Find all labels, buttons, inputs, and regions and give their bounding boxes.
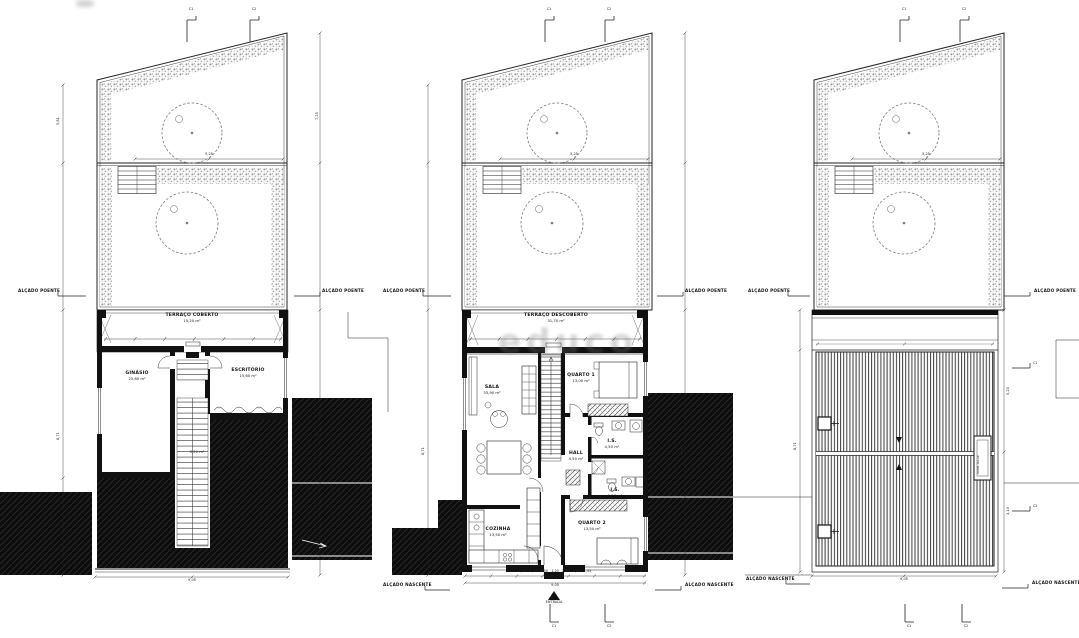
section-label: C2: [1033, 505, 1037, 508]
dimension: 9,05: [188, 579, 196, 583]
garden-panel-3: [814, 33, 1004, 310]
garden-panel-1: [97, 33, 287, 310]
dimension: 3,10: [1007, 507, 1011, 515]
dimension: 9,05: [551, 584, 559, 588]
dimension: 5,25: [922, 153, 930, 157]
elevation-label-nascente: ALÇADO NASCENTE: [685, 583, 734, 587]
elevation-label-nascente: ALÇADO NASCENTE: [1032, 581, 1079, 585]
section-label: C1: [907, 625, 911, 628]
entrance-label: ENTRADA: [546, 601, 563, 605]
dimension: 5,25: [205, 153, 213, 157]
section-label: C1: [547, 8, 551, 11]
room-area: 33,90 m²: [483, 391, 500, 395]
room-area: 4,50 m²: [605, 445, 620, 449]
room-area: 13,50 m²: [489, 533, 506, 537]
dimension: 8,71: [794, 442, 798, 450]
roof-side-box-label: PAINEL SOLAR: [978, 455, 981, 474]
room-area: 25,60 m²: [128, 377, 145, 381]
section-flags-top: [187, 16, 969, 42]
dimension: 9,05: [900, 578, 908, 582]
elevation-label-poente: ALÇADO POENTE: [685, 289, 727, 293]
elevation-label-poente: ALÇADO POENTE: [322, 289, 364, 293]
watermark: educo: [468, 322, 668, 362]
section-label: C1: [552, 625, 556, 628]
section-label: C2: [607, 8, 611, 11]
page-artifact: [76, 0, 94, 7]
dimension: 7,25: [316, 112, 320, 120]
dimension: 8,98: [681, 447, 685, 455]
section-label: C1: [1033, 362, 1037, 365]
dimension-row: 1,45 1,20 2,50 1,20 2,50 1,20 1,45: [519, 570, 591, 574]
room-area: 5,00 m²: [608, 494, 623, 498]
room-area: 4,50 m²: [569, 457, 584, 461]
floor-plan-sheet: educo C1 C2 C1 C2 C1 C2 ALÇADO POENTE AL…: [0, 0, 1079, 638]
elevation-label-nascente: ALÇADO NASCENTE: [746, 577, 795, 581]
section-label: C2: [252, 8, 256, 11]
room-area: 31,70 m²: [547, 319, 564, 323]
elevation-label-poente: ALÇADO POENTE: [1034, 289, 1076, 293]
room-area: 13,50 m²: [583, 527, 600, 531]
drawing-linework: [0, 0, 1079, 638]
elevation-label-poente: ALÇADO POENTE: [18, 289, 60, 293]
room-area: 15,60 m²: [239, 374, 256, 378]
panel3-roof-plan: [733, 309, 1079, 623]
dimension: 8,98: [316, 432, 320, 440]
section-label: C2: [964, 625, 968, 628]
section-label: C2: [607, 625, 611, 628]
elevation-label-nascente: ALÇADO NASCENTE: [383, 583, 432, 587]
room-area: 15,20 m²: [183, 319, 200, 323]
dimension: 8,71: [422, 447, 426, 455]
dimension: 5,25: [570, 153, 578, 157]
section-label: C1: [902, 8, 906, 11]
section-label: C1: [189, 8, 193, 11]
dimension: 5,20: [1007, 387, 1011, 395]
garden-panel-2: [462, 33, 652, 310]
elevation-label-poente: ALÇADO POENTE: [383, 289, 425, 293]
dimension: 5,81: [57, 117, 61, 125]
room-area: 13,00 m²: [572, 379, 589, 383]
dimension: 8,71: [57, 432, 61, 440]
room-area-arrumos: 3,50 m²: [190, 450, 205, 454]
section-label: C2: [962, 8, 966, 11]
elevation-label-poente: ALÇADO POENTE: [748, 289, 790, 293]
